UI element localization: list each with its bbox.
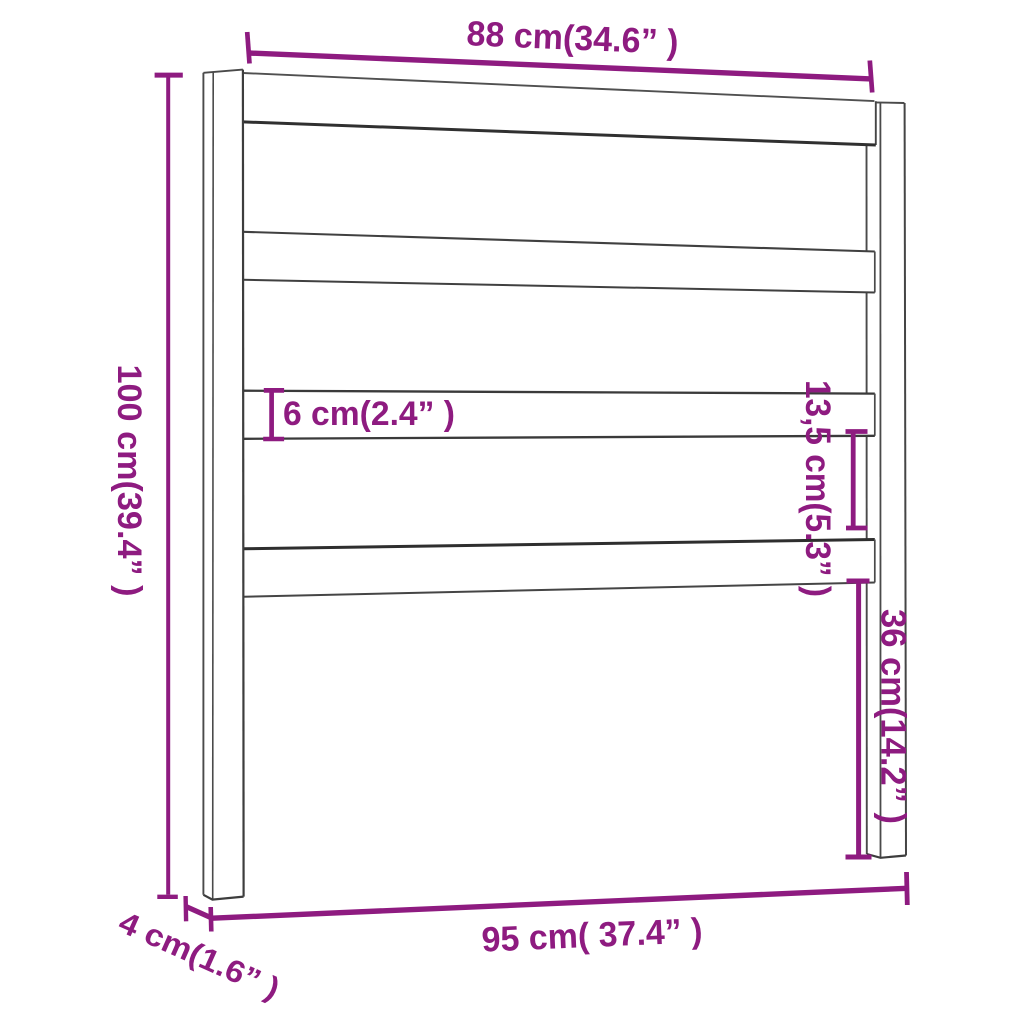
svg-text:36 cm(14.2” ): 36 cm(14.2” ) xyxy=(874,609,913,824)
svg-text:13,5 cm(5.3” ): 13,5 cm(5.3” ) xyxy=(798,380,837,597)
svg-text:100 cm(39.4” ): 100 cm(39.4” ) xyxy=(110,365,148,597)
svg-text:6 cm(2.4” ): 6 cm(2.4” ) xyxy=(283,395,455,433)
